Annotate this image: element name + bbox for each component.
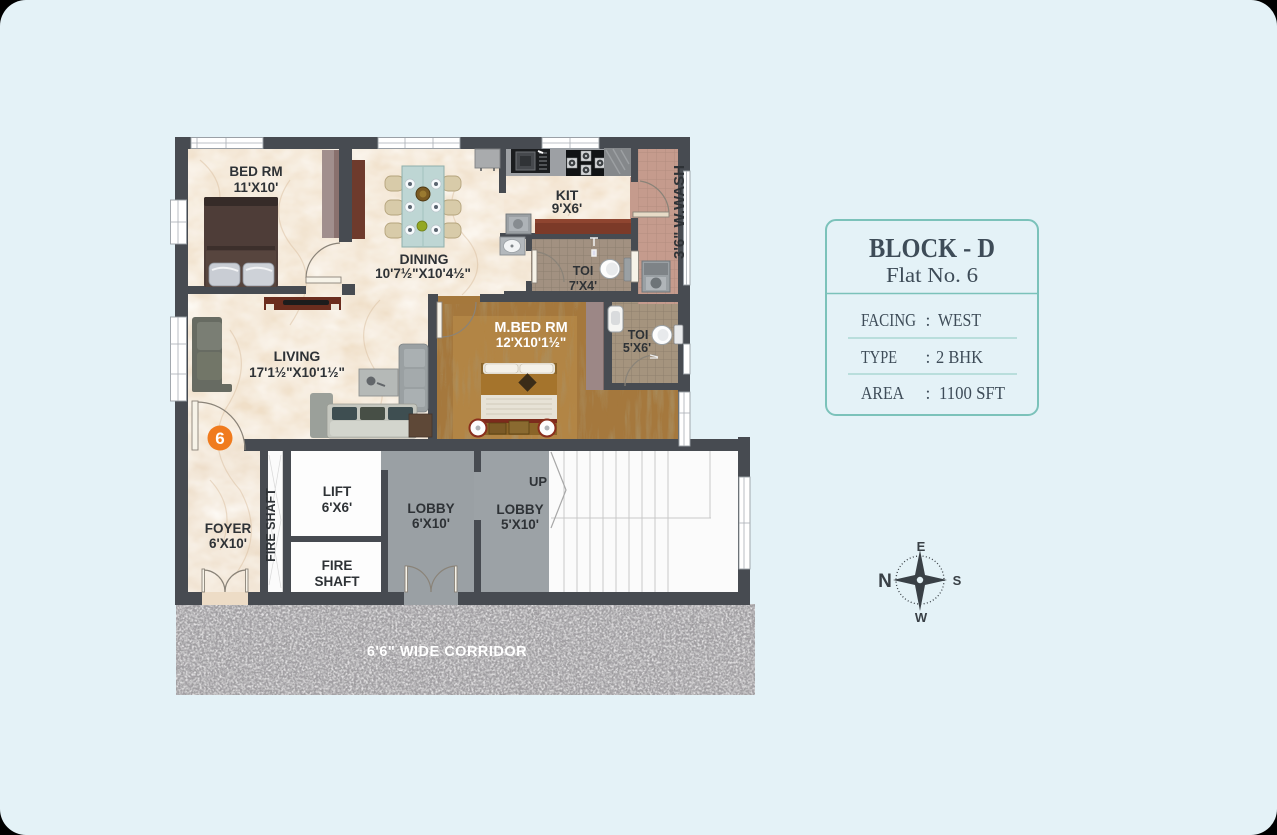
- svg-text::: :: [926, 383, 931, 403]
- svg-text:UP: UP: [529, 474, 547, 489]
- svg-text:BED RM: BED RM: [229, 164, 282, 179]
- svg-text:6'6" WIDE CORRIDOR: 6'6" WIDE CORRIDOR: [367, 644, 527, 660]
- svg-text:FIRE SHAFT: FIRE SHAFT: [264, 488, 278, 562]
- svg-text:7'X4': 7'X4': [569, 279, 597, 293]
- svg-text:11'X10': 11'X10': [234, 180, 279, 195]
- svg-text:TOI: TOI: [628, 328, 649, 342]
- svg-text:AREA: AREA: [861, 383, 904, 403]
- svg-text:LOBBY: LOBBY: [407, 501, 454, 516]
- svg-text:2 BHK: 2 BHK: [936, 347, 983, 367]
- svg-text:5'X10': 5'X10': [501, 517, 539, 532]
- svg-text:LIFT: LIFT: [323, 484, 352, 499]
- svg-text:12'X10'1½": 12'X10'1½": [496, 335, 567, 350]
- svg-text:6'X10': 6'X10': [412, 516, 450, 531]
- svg-text:17'1½"X10'1½": 17'1½"X10'1½": [249, 365, 345, 380]
- svg-text::: :: [926, 310, 931, 330]
- svg-text:9'X6': 9'X6': [552, 201, 582, 216]
- svg-text:6'X10': 6'X10': [209, 536, 247, 551]
- svg-text:10'7½"X10'4½": 10'7½"X10'4½": [375, 266, 471, 281]
- svg-text:E: E: [917, 539, 926, 554]
- svg-text:6'X6': 6'X6': [322, 500, 352, 515]
- svg-text:Flat No. 6: Flat No. 6: [886, 263, 978, 287]
- svg-text:1100 SFT: 1100 SFT: [939, 383, 1005, 403]
- svg-text:LIVING: LIVING: [274, 348, 321, 364]
- svg-text:BLOCK - D: BLOCK - D: [869, 233, 995, 263]
- svg-text:N: N: [878, 571, 892, 592]
- svg-text:DINING: DINING: [400, 251, 449, 267]
- svg-text:M.BED RM: M.BED RM: [494, 320, 567, 336]
- svg-text:S: S: [953, 573, 962, 588]
- svg-text:FOYER: FOYER: [205, 521, 252, 536]
- svg-text:W: W: [915, 610, 928, 625]
- svg-text:5'X6': 5'X6': [623, 341, 651, 355]
- svg-text:WEST: WEST: [938, 310, 981, 330]
- svg-text:6: 6: [215, 429, 224, 448]
- svg-text:LOBBY: LOBBY: [496, 502, 543, 517]
- svg-text:3'6" W.WASH: 3'6" W.WASH: [671, 165, 688, 259]
- svg-text:FACING: FACING: [861, 310, 916, 330]
- svg-text:TYPE: TYPE: [861, 347, 897, 367]
- svg-text:SHAFT: SHAFT: [315, 574, 361, 589]
- svg-text:TOI: TOI: [573, 264, 594, 278]
- svg-text::: :: [926, 347, 931, 367]
- svg-text:FIRE: FIRE: [322, 558, 353, 573]
